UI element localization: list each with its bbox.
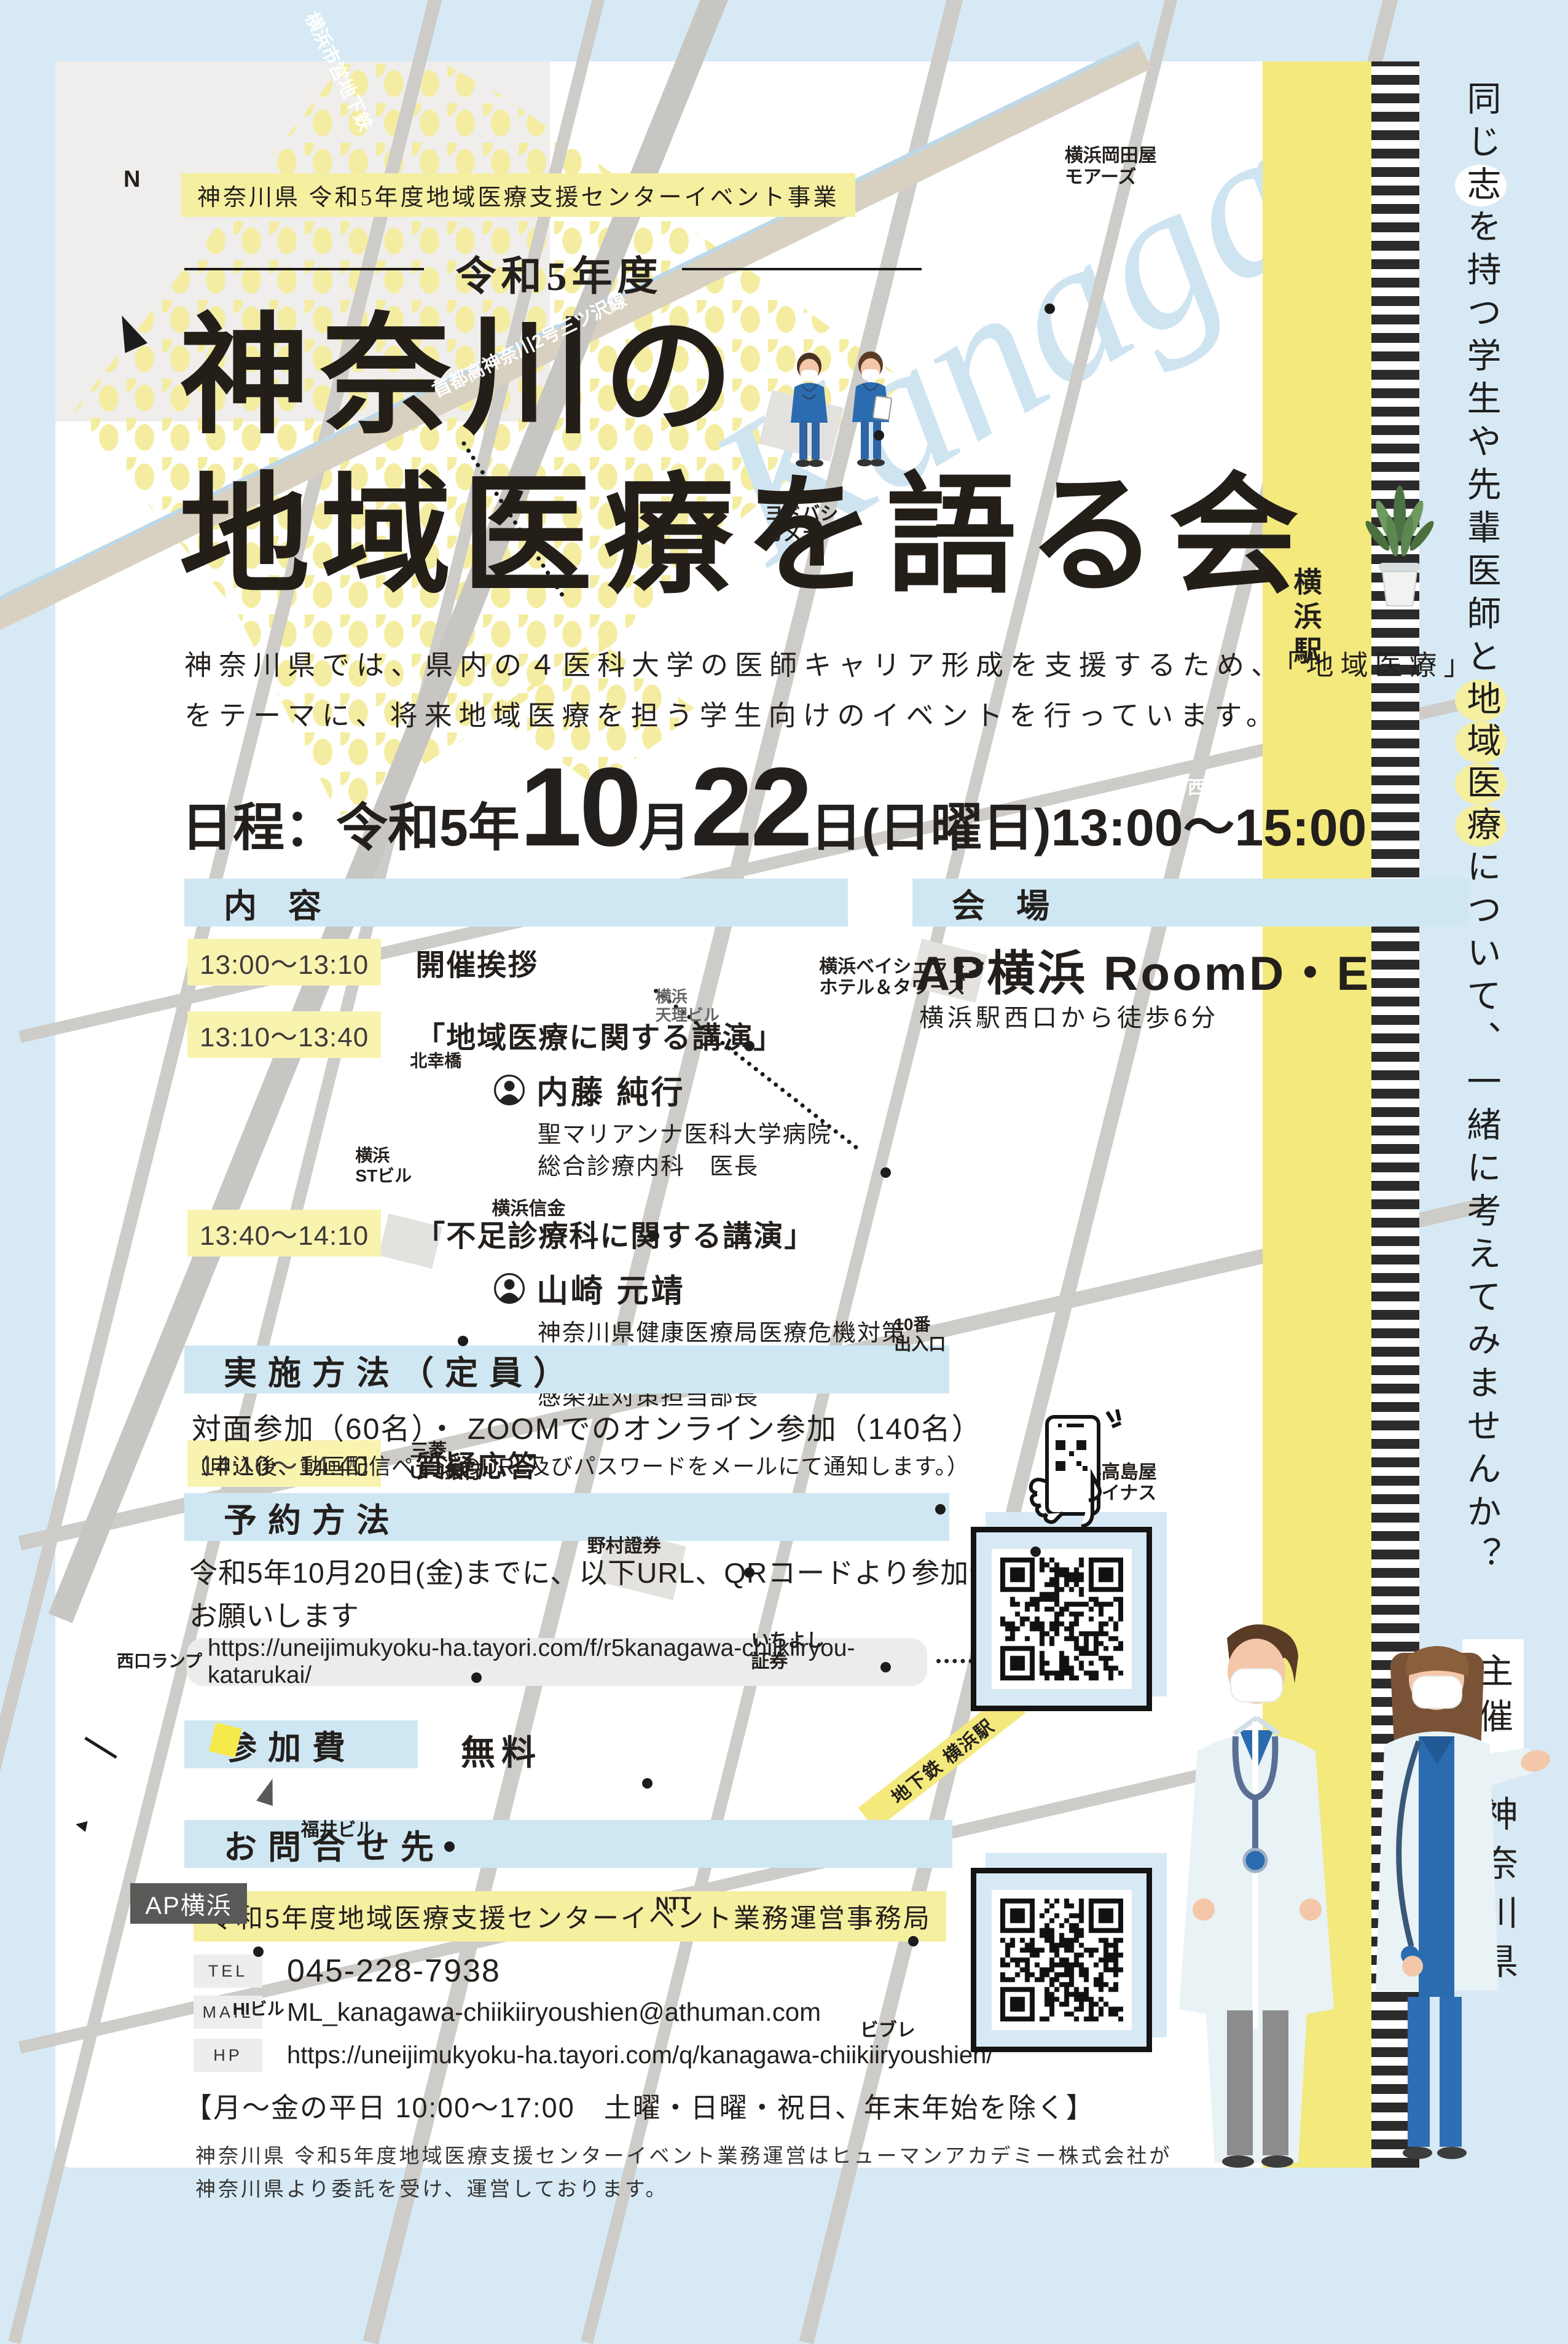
contact-qr-block xyxy=(971,1868,1152,2052)
north-label: N xyxy=(123,167,140,193)
fee-value: 無料 xyxy=(461,1725,542,1775)
sidebar-char: 、 xyxy=(1464,1019,1498,1062)
intro-paragraph: 神奈川県では、県内の４医科大学の医師キャリア形成を支援するため、「地域医療」 を… xyxy=(184,640,1481,741)
intro-line1: 神奈川県では、県内の４医科大学の医師キャリア形成を支援するため、「地域医療」 xyxy=(184,640,1481,691)
date-day-unit: 日 xyxy=(810,786,862,861)
sidebar-char: え xyxy=(1464,1234,1498,1277)
schedule-title: 開催挨拶 xyxy=(415,941,538,984)
section-header-method: 実施方法（定員） xyxy=(184,1346,949,1393)
reservation-qr-block xyxy=(971,1527,1152,1711)
event-date: 日程：令和5年10月22日(日曜日)13:00～15:00 xyxy=(181,742,1366,871)
contact-mail-row: MAIL ML_kanagawa-chiikiiryoushien@athuma… xyxy=(194,1996,821,2029)
speaker-person-icon xyxy=(493,1272,525,1304)
sidebar-char: 域 xyxy=(1455,721,1507,763)
section-header-contact: お問合せ先 xyxy=(184,1820,952,1868)
speaker-affiliation: 聖マリアンナ医科大学病院 xyxy=(538,1119,912,1151)
sidebar-char: 同 xyxy=(1464,79,1498,122)
top-banner: 神奈川県 令和5年度地域医療支援センターイベント事業 xyxy=(181,173,855,217)
sidebar-char: 輩 xyxy=(1464,508,1498,551)
main-title-line2: 地域医療を語る会 xyxy=(179,472,1310,602)
sidebar-char: 先 xyxy=(1464,464,1498,508)
sidebar-vertical-message: 同じ志を持つ学生や先輩医師と地域医療について、一緒に考えてみませんか？ xyxy=(1464,79,1498,1578)
section-header-contents: 内 容 xyxy=(184,879,848,927)
sidebar-char: 持 xyxy=(1464,249,1498,292)
doctors-illustration xyxy=(1158,1610,1551,2200)
section-header-reservation: 予約方法 xyxy=(184,1493,949,1541)
sidebar-char: て xyxy=(1464,976,1498,1019)
sidebar-char: 緒 xyxy=(1464,1105,1498,1148)
speaker-person-icon xyxy=(493,1074,525,1106)
sidebar-char: ま xyxy=(1464,1363,1498,1406)
sidebar-char: 療 xyxy=(1455,805,1507,847)
method-line1: 対面参加（60名）・ ZOOMでのオンライン参加（140名） xyxy=(192,1405,982,1448)
schedule-time: 13:40～14:10 xyxy=(187,1210,381,1256)
sidebar-char: つ xyxy=(1464,890,1498,933)
speaker-title: 総合診療内科 医長 xyxy=(538,1151,912,1183)
method-line2: （申込後、動画配信ページのURL及びパスワードをメールにて通知します。） xyxy=(187,1449,970,1481)
section-header-venue: 会 場 xyxy=(912,879,1468,927)
qr-frame xyxy=(971,1527,1152,1711)
sidebar-char: 考 xyxy=(1464,1191,1498,1234)
plant-illustration xyxy=(1357,477,1443,612)
flyer-card: Kanagawa 神奈川県 令和5年度地域医療支援センターイベント事業 令和5年… xyxy=(55,61,1419,2168)
sidebar-char: か xyxy=(1464,1492,1498,1535)
sidebar-char: じ xyxy=(1464,122,1498,165)
reservation-qr-code xyxy=(1000,1558,1123,1680)
sidebar-char: を xyxy=(1464,206,1498,249)
sidebar-char: 学 xyxy=(1464,335,1498,378)
nurses-illustration xyxy=(771,349,919,478)
date-prefix: 日程：令和5年 xyxy=(181,786,520,861)
sidebar-char: せ xyxy=(1464,1406,1498,1449)
sidebar-char: に xyxy=(1464,1148,1498,1191)
sidebar-char: と xyxy=(1464,637,1498,680)
contact-hp-row: HP https://uneijimukyoku-ha.tayori.com/q… xyxy=(194,2039,993,2072)
sidebar-char: 師 xyxy=(1464,594,1498,637)
date-day-number: 22 xyxy=(691,742,810,871)
sidebar-char: ん xyxy=(1464,1449,1498,1492)
sidebar-char: つ xyxy=(1464,292,1498,335)
edition-line-left xyxy=(184,268,424,270)
footnote-line2: 神奈川県より委託を受け、運営しております。 xyxy=(195,2173,668,2202)
contact-office: 令和5年度地域医療支援センターイベント業務運営事務局 xyxy=(194,1891,946,1942)
sidebar-char: ？ xyxy=(1464,1535,1498,1578)
intro-line2: をテーマに、将来地域医療を担う学生向けのイベントを行っています。 xyxy=(184,691,1481,741)
contact-qr-code xyxy=(1000,1899,1123,2021)
schedule-speaker: 内藤 純行 xyxy=(493,1067,912,1113)
sidebar-char: 志 xyxy=(1455,165,1507,206)
date-month-unit: 月 xyxy=(639,786,691,861)
hp-value[interactable]: https://uneijimukyoku-ha.tayori.com/q/ka… xyxy=(287,2042,993,2069)
sidebar-char: 医 xyxy=(1464,551,1498,594)
qr-frame xyxy=(971,1868,1152,2052)
sidebar-char: て xyxy=(1464,1277,1498,1320)
speaker-name: 山崎 元靖 xyxy=(536,1265,685,1311)
sidebar-char: 医 xyxy=(1455,763,1507,805)
footnote-line1: 神奈川県 令和5年度地域医療支援センターイベント業務運営はヒューマンアカデミー株… xyxy=(195,2139,1172,2169)
mail-value[interactable]: ML_kanagawa-chiikiiryoushien@athuman.com xyxy=(287,1997,821,2027)
contact-tel-row: TEL 045-228-7938 xyxy=(194,1953,501,1989)
tel-value[interactable]: 045-228-7938 xyxy=(287,1953,501,1989)
sidebar-char: い xyxy=(1464,933,1498,976)
sidebar-char: や xyxy=(1464,421,1498,464)
schedule-title: 「不足診療科に関する講演」 xyxy=(415,1212,815,1255)
phone-qr-scan-icon xyxy=(1015,1408,1126,1537)
schedule-row: 13:10～13:40「地域医療に関する講演」 xyxy=(187,1011,912,1058)
speaker-name: 内藤 純行 xyxy=(536,1067,685,1113)
sidebar-char: 一 xyxy=(1464,1062,1498,1105)
venue-access: 横浜駅西口から徒歩6分 xyxy=(919,998,1219,1033)
tel-chip: TEL xyxy=(194,1954,262,1988)
edition-line-right xyxy=(682,268,922,270)
date-month-number: 10 xyxy=(520,742,639,871)
reservation-line2: お願いします xyxy=(189,1594,359,1634)
schedule-speaker: 山崎 元靖 xyxy=(493,1265,912,1311)
schedule-row: 13:00～13:10開催挨拶 xyxy=(187,939,912,986)
sidebar-char: み xyxy=(1464,1320,1498,1363)
date-weekday: (日曜日) xyxy=(862,786,1051,861)
schedule-time: 13:00～13:10 xyxy=(187,939,381,986)
sidebar-char: 地 xyxy=(1455,680,1507,721)
edition-label: 令和5年度 xyxy=(442,243,676,302)
sidebar-char: に xyxy=(1464,847,1498,890)
schedule-title: 「地域医療に関する講演」 xyxy=(415,1013,784,1056)
sidebar-char: 生 xyxy=(1464,378,1498,421)
office-hours: 【月～金の平日 10:00～17:00 土曜・日曜・祝日、年末年始を除く】 xyxy=(184,2085,1095,2125)
hp-chip: HP xyxy=(194,2039,262,2072)
schedule-time: 13:10～13:40 xyxy=(187,1011,381,1058)
